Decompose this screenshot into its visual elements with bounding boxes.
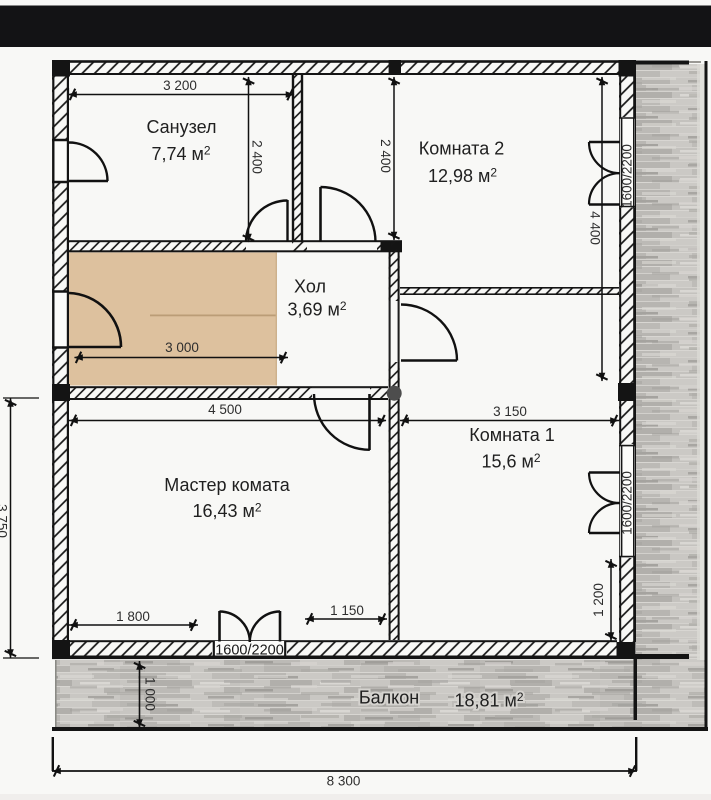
svg-text:1 800: 1 800 [116,609,150,624]
svg-text:7,74 м2: 7,74 м2 [151,144,210,165]
svg-text:18,81 м2: 18,81 м2 [454,690,523,711]
svg-text:4 400: 4 400 [588,211,603,245]
svg-text:16,43 м2: 16,43 м2 [192,501,261,522]
svg-text:Комната 1: Комната 1 [469,425,555,445]
svg-text:Балкон: Балкон [359,688,419,708]
svg-text:Санузел: Санузел [146,117,216,137]
svg-text:2 400: 2 400 [378,139,393,173]
svg-text:3 000: 3 000 [165,340,199,355]
svg-text:15,6 м2: 15,6 м2 [481,451,540,472]
svg-text:Мастер комата: Мастер комата [164,475,290,495]
svg-text:Хол: Хол [294,277,326,297]
svg-text:8 300: 8 300 [327,774,361,789]
svg-text:1600/2200: 1600/2200 [620,471,635,535]
svg-text:2 400: 2 400 [250,140,265,174]
svg-text:12,98 м2: 12,98 м2 [428,166,497,187]
svg-text:1600/2200: 1600/2200 [215,643,284,659]
svg-text:3,69 м2: 3,69 м2 [287,299,346,320]
svg-text:3 750: 3 750 [0,504,10,538]
svg-text:4 500: 4 500 [208,402,242,417]
svg-text:1 000: 1 000 [143,677,158,711]
svg-text:3 150: 3 150 [493,404,527,419]
svg-text:1600/2200: 1600/2200 [620,144,635,208]
svg-text:3 200: 3 200 [163,78,197,93]
svg-text:Комната 2: Комната 2 [419,139,505,159]
svg-text:1 150: 1 150 [330,603,364,618]
svg-text:1 200: 1 200 [591,583,606,617]
